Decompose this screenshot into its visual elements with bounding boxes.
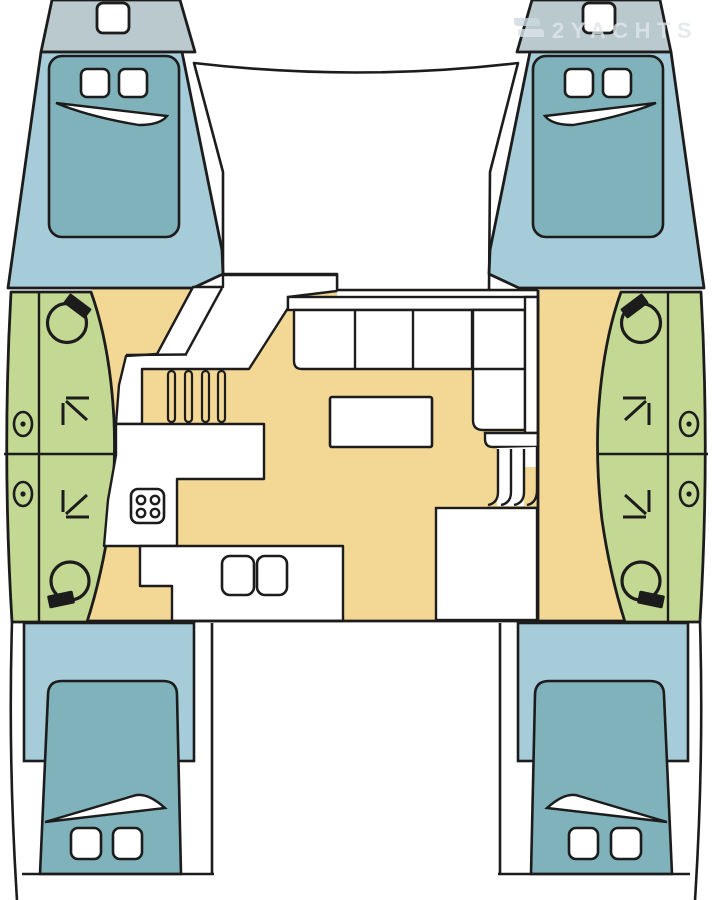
svg-text:2YACHTS: 2YACHTS <box>552 18 698 43</box>
